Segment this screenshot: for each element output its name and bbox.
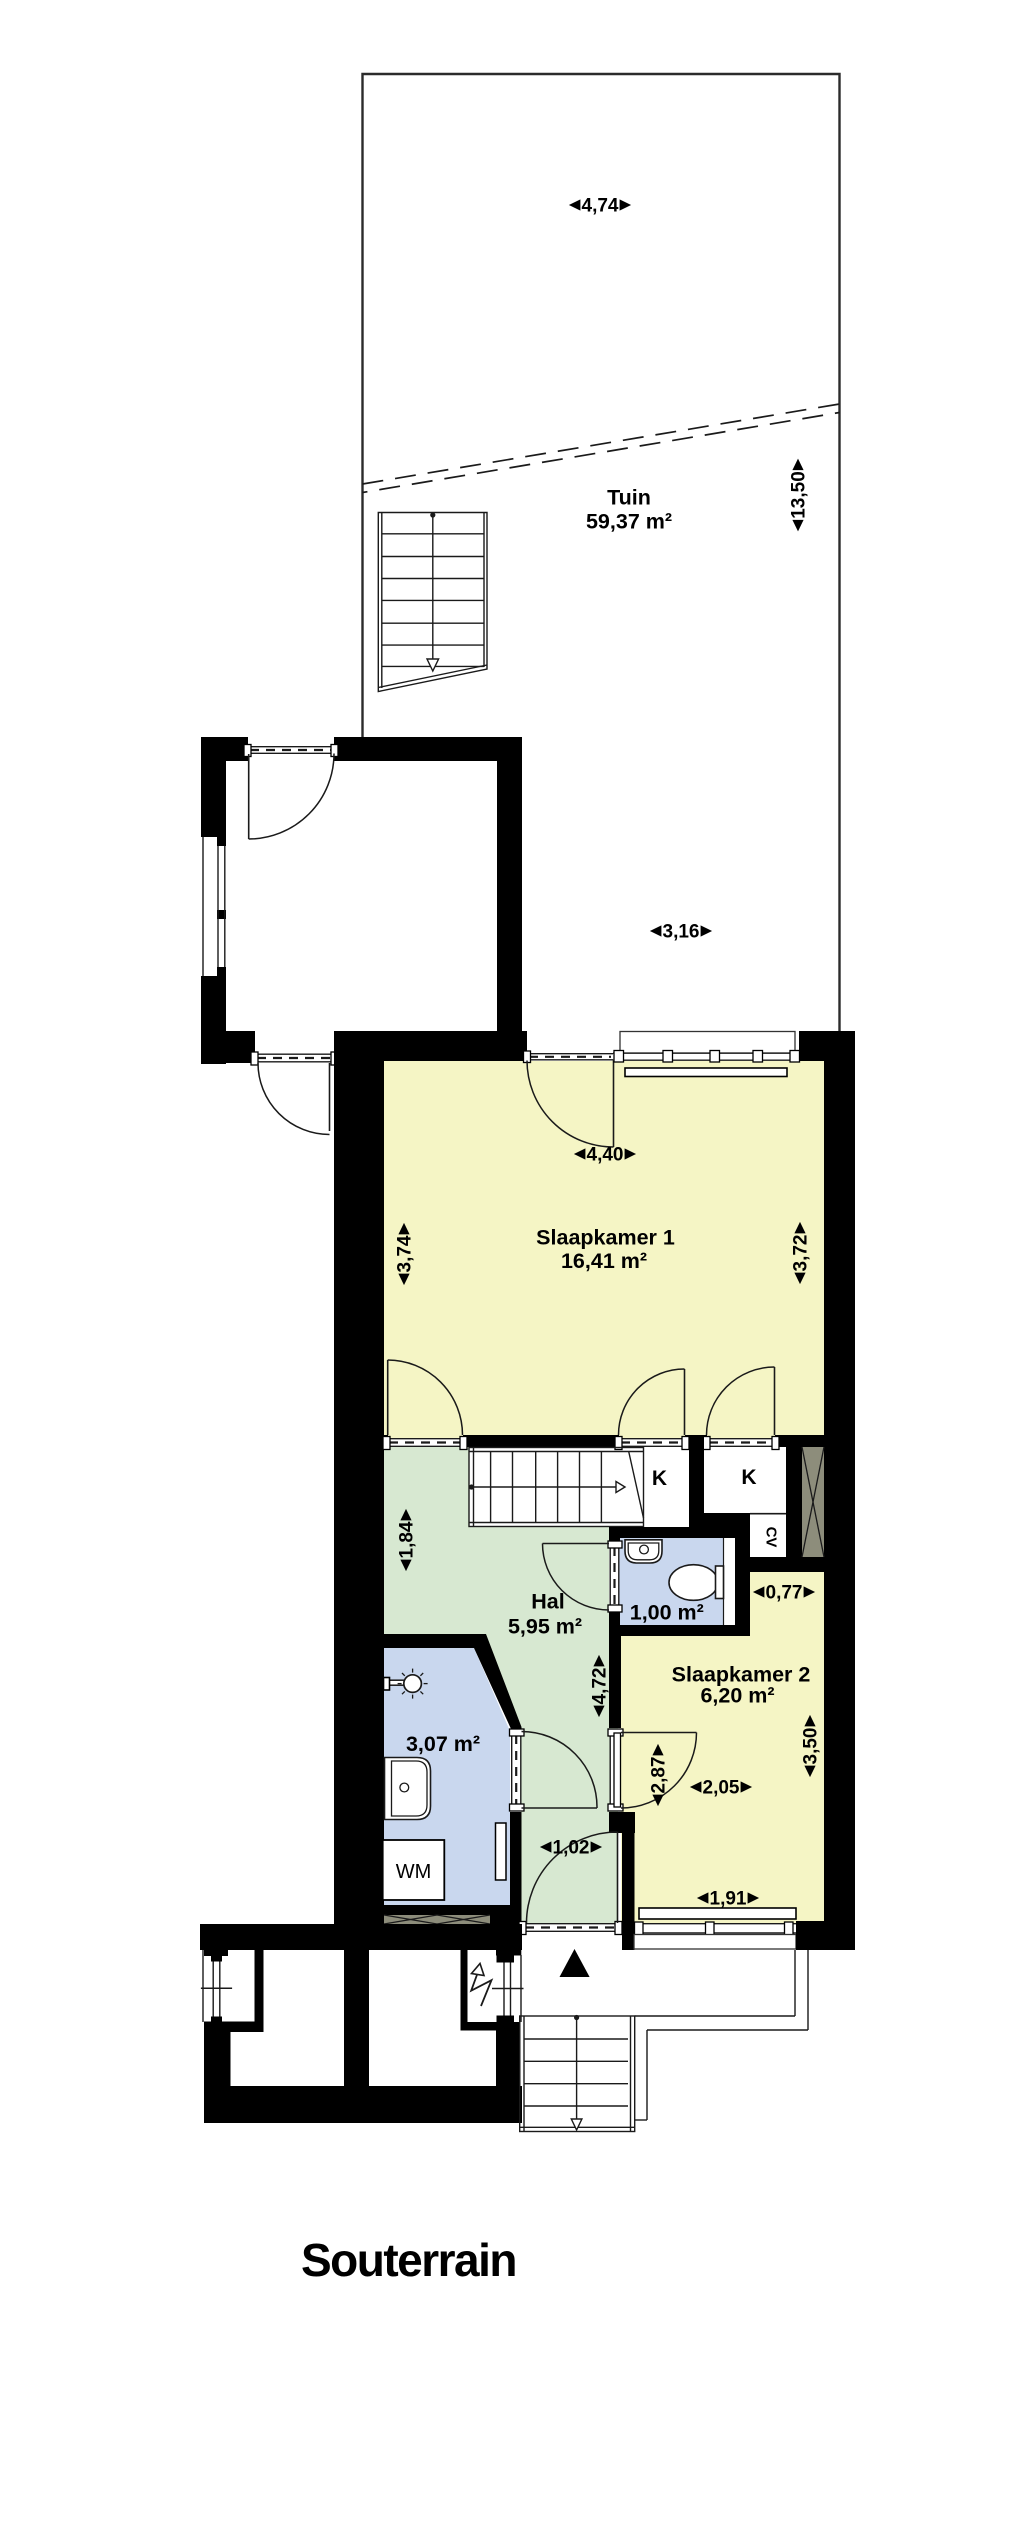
svg-text:1,00 m²: 1,00 m²: [630, 1601, 704, 1625]
svg-text:0,77: 0,77: [766, 1583, 803, 1604]
svg-text:59,37 m²: 59,37 m²: [586, 510, 672, 534]
svg-text:6,20 m²: 6,20 m²: [700, 1684, 774, 1708]
svg-text:1,91: 1,91: [710, 1889, 747, 1910]
svg-text:Hal: Hal: [531, 1590, 564, 1614]
svg-text:4,74: 4,74: [582, 196, 619, 217]
svg-text:CV: CV: [763, 1527, 780, 1548]
svg-text:4,72: 4,72: [590, 1668, 611, 1705]
svg-text:1,02: 1,02: [553, 1838, 590, 1859]
svg-text:K: K: [741, 1466, 756, 1489]
svg-text:2,05: 2,05: [703, 1778, 740, 1799]
svg-text:K: K: [652, 1467, 667, 1490]
svg-text:2,87: 2,87: [649, 1757, 670, 1794]
svg-text:3,16: 3,16: [663, 922, 700, 943]
svg-text:3,07 m²: 3,07 m²: [406, 1732, 480, 1756]
svg-text:5,95 m²: 5,95 m²: [508, 1615, 582, 1639]
svg-text:Tuin: Tuin: [607, 486, 651, 510]
svg-text:3,50: 3,50: [801, 1728, 822, 1765]
svg-text:3,74: 3,74: [395, 1235, 416, 1272]
svg-text:13,50: 13,50: [789, 471, 810, 519]
svg-text:4,40: 4,40: [587, 1145, 624, 1166]
svg-text:3,72: 3,72: [791, 1235, 812, 1272]
svg-text:16,41 m²: 16,41 m²: [561, 1249, 647, 1273]
svg-text:Souterrain: Souterrain: [301, 2234, 516, 2286]
svg-text:WM: WM: [396, 1861, 432, 1883]
svg-text:Slaapkamer 1: Slaapkamer 1: [536, 1226, 675, 1250]
svg-text:1,84: 1,84: [397, 1521, 418, 1558]
